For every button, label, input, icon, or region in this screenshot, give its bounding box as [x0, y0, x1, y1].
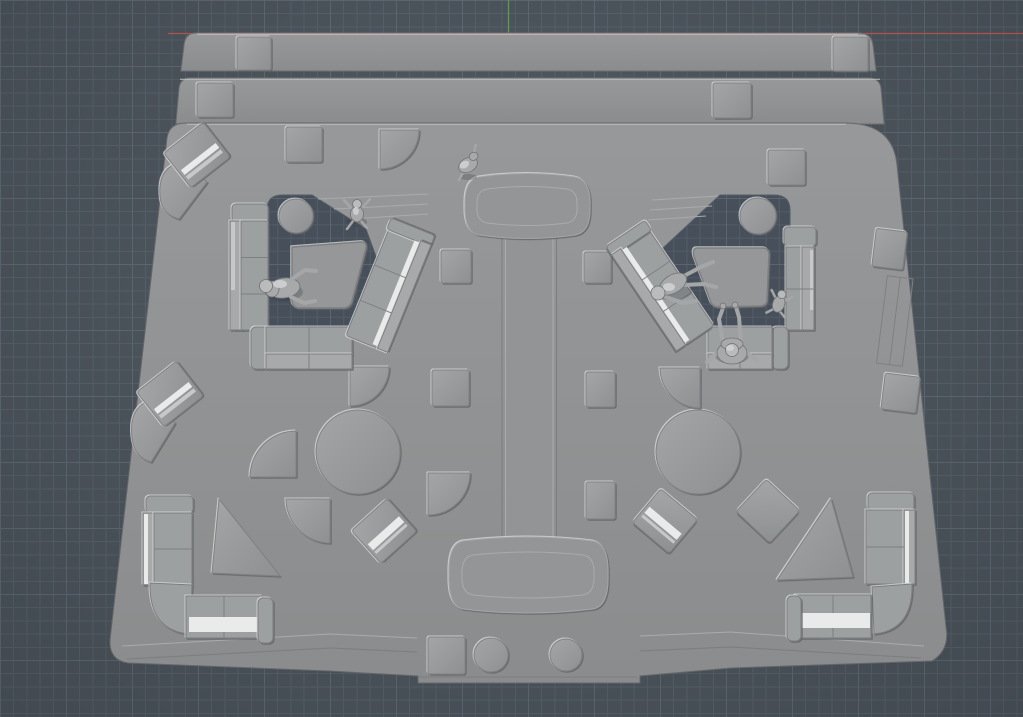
3d-viewport[interactable]	[0, 0, 1023, 717]
tier-2-pad-right[interactable]	[713, 83, 751, 118]
floor-pad-square-4[interactable]	[584, 252, 611, 283]
floor-pad-square-1[interactable]	[286, 127, 322, 162]
figure-highlight	[353, 207, 359, 215]
tier-1-pad-left[interactable]	[237, 37, 271, 70]
floor-pad-square-2[interactable]	[768, 150, 805, 185]
pit-circle-left[interactable]	[279, 199, 313, 233]
figure-highlight	[726, 345, 734, 351]
sofa-armrest	[772, 327, 788, 369]
sofa-armrest-end	[258, 598, 273, 643]
sofa-cushion-stripe	[799, 613, 870, 628]
sofa-back-stripe	[905, 511, 909, 583]
sofa-armrest	[784, 227, 816, 246]
right-pit-sofa-vertical[interactable]	[784, 227, 816, 330]
sofa-back-stripe	[144, 514, 148, 584]
sofa-armrest-end	[787, 596, 801, 641]
figure-highlight	[663, 283, 675, 291]
tier-2-platform[interactable]	[176, 78, 884, 124]
tier-1-pad-right[interactable]	[833, 37, 868, 71]
floor-pad-square-5[interactable]	[432, 370, 469, 406]
floor-pad-square-tab[interactable]	[428, 637, 465, 674]
left-pit-sofa-vertical[interactable]	[230, 204, 268, 330]
figure-head	[651, 286, 665, 300]
figure-head	[260, 280, 273, 293]
round-table-left[interactable]	[316, 410, 400, 494]
barrel-console-bottom[interactable]	[449, 537, 608, 613]
tier-1-platform[interactable]	[181, 33, 876, 71]
tab-circle-right[interactable]	[550, 639, 582, 671]
figure-highlight	[273, 280, 287, 288]
scene-svg	[0, 0, 1023, 717]
tier-2-pad-left[interactable]	[197, 83, 233, 117]
sofa-cushion-stripe	[189, 617, 259, 632]
tab-circle-left[interactable]	[474, 638, 508, 672]
sofa-back-stripe	[231, 222, 235, 290]
sofa-armrest-top	[146, 496, 193, 513]
figure-foot-left	[720, 303, 726, 309]
figure-foot-right	[732, 302, 738, 308]
floor-pad-square-6[interactable]	[586, 372, 615, 407]
edge-pad-square-upper[interactable]	[872, 228, 907, 269]
sofa-seat	[241, 221, 268, 330]
left-pit-sofa-bottom[interactable]	[251, 327, 352, 369]
sofa-armrest-top	[868, 493, 914, 510]
pit-circle-right[interactable]	[740, 198, 776, 234]
corridor-strip	[505, 238, 554, 540]
sofa-armrest	[251, 327, 268, 369]
floor-pad-square-7[interactable]	[586, 482, 615, 519]
barrel-console-top[interactable]	[465, 174, 590, 239]
figure-head	[353, 200, 362, 209]
floor-pad-square-3[interactable]	[441, 250, 471, 283]
round-table-right[interactable]	[656, 410, 740, 494]
edge-pad-square-lower[interactable]	[881, 373, 920, 413]
sofa-back-stripe	[810, 250, 814, 310]
scene-objects-layer	[110, 0, 1023, 683]
sofa-armrest	[232, 204, 268, 222]
